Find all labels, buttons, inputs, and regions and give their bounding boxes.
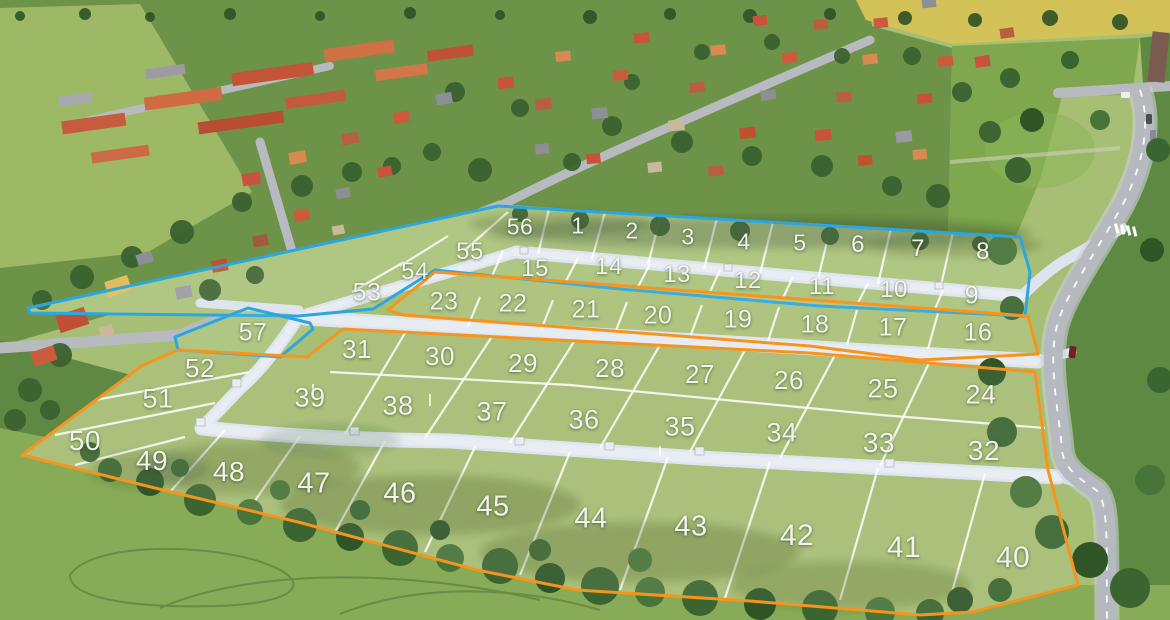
plot-marker-31[interactable]: 31 [342,336,372,362]
plot-marker-14[interactable]: 14 [595,255,623,279]
plot-marker-8[interactable]: 8 [976,240,990,264]
plot-marker-16[interactable]: 16 [964,321,993,346]
plot-marker-29[interactable]: 29 [508,350,538,376]
plot-marker-22[interactable]: 22 [499,292,528,317]
plot-marker-10[interactable]: 10 [880,278,908,302]
plot-marker-30[interactable]: 30 [425,343,455,369]
plot-marker-51[interactable]: 51 [142,386,173,413]
plot-marker-48[interactable]: 48 [213,458,245,486]
development-map: 1234567891011121314151617181920212223242… [0,0,1170,620]
plot-marker-47[interactable]: 47 [297,470,330,499]
plot-marker-41[interactable]: 41 [887,533,921,563]
plot-marker-34[interactable]: 34 [766,420,797,447]
plot-marker-49[interactable]: 49 [136,447,168,475]
plot-marker-18[interactable]: 18 [801,313,830,338]
plot-marker-57[interactable]: 57 [239,321,268,346]
plot-marker-9[interactable]: 9 [965,284,979,309]
plot-marker-44[interactable]: 44 [574,505,607,534]
plot-marker-33[interactable]: 33 [863,429,895,457]
plot-marker-40[interactable]: 40 [996,543,1030,573]
plot-marker-42[interactable]: 42 [780,521,814,551]
plot-marker-56[interactable]: 56 [507,216,534,239]
plot-marker-15[interactable]: 15 [521,257,549,281]
plot-marker-7[interactable]: 7 [911,237,925,261]
plot-marker-35[interactable]: 35 [664,414,695,441]
plot-marker-45[interactable]: 45 [476,493,509,522]
plot-marker-24[interactable]: 24 [965,382,996,409]
plot-marker-25[interactable]: 25 [867,376,898,403]
plot-marker-32[interactable]: 32 [968,437,1000,465]
plot-marker-21[interactable]: 21 [572,298,601,323]
plot-marker-43[interactable]: 43 [674,513,707,542]
plot-marker-38[interactable]: 38 [382,393,413,420]
plot-marker-23[interactable]: 23 [430,290,459,315]
plot-marker-54[interactable]: 54 [401,260,429,284]
plot-marker-53[interactable]: 53 [353,281,382,306]
plot-marker-50[interactable]: 50 [69,427,101,455]
plot-marker-13[interactable]: 13 [663,263,691,287]
plot-marker-36[interactable]: 36 [568,407,599,434]
plot-marker-17[interactable]: 17 [879,316,908,341]
plot-marker-3[interactable]: 3 [681,226,694,249]
plot-marker-52[interactable]: 52 [185,355,215,381]
plot-marker-1[interactable]: 1 [571,215,584,238]
plot-marker-55[interactable]: 55 [456,240,484,264]
plot-marker-27[interactable]: 27 [685,361,715,387]
plot-marker-39[interactable]: 39 [294,385,325,412]
zone-orange-main [22,329,1078,615]
plot-marker-5[interactable]: 5 [793,232,806,255]
plot-marker-26[interactable]: 26 [774,367,804,393]
plot-marker-37[interactable]: 37 [476,399,507,426]
plot-marker-20[interactable]: 20 [644,304,673,329]
plot-marker-46[interactable]: 46 [383,480,416,509]
plot-marker-19[interactable]: 19 [724,308,753,333]
plot-marker-11[interactable]: 11 [809,275,835,299]
plot-marker-12[interactable]: 12 [734,269,762,293]
plot-marker-4[interactable]: 4 [737,231,750,254]
plot-marker-2[interactable]: 2 [625,220,638,243]
plot-marker-28[interactable]: 28 [595,355,625,381]
plot-marker-6[interactable]: 6 [851,233,865,257]
